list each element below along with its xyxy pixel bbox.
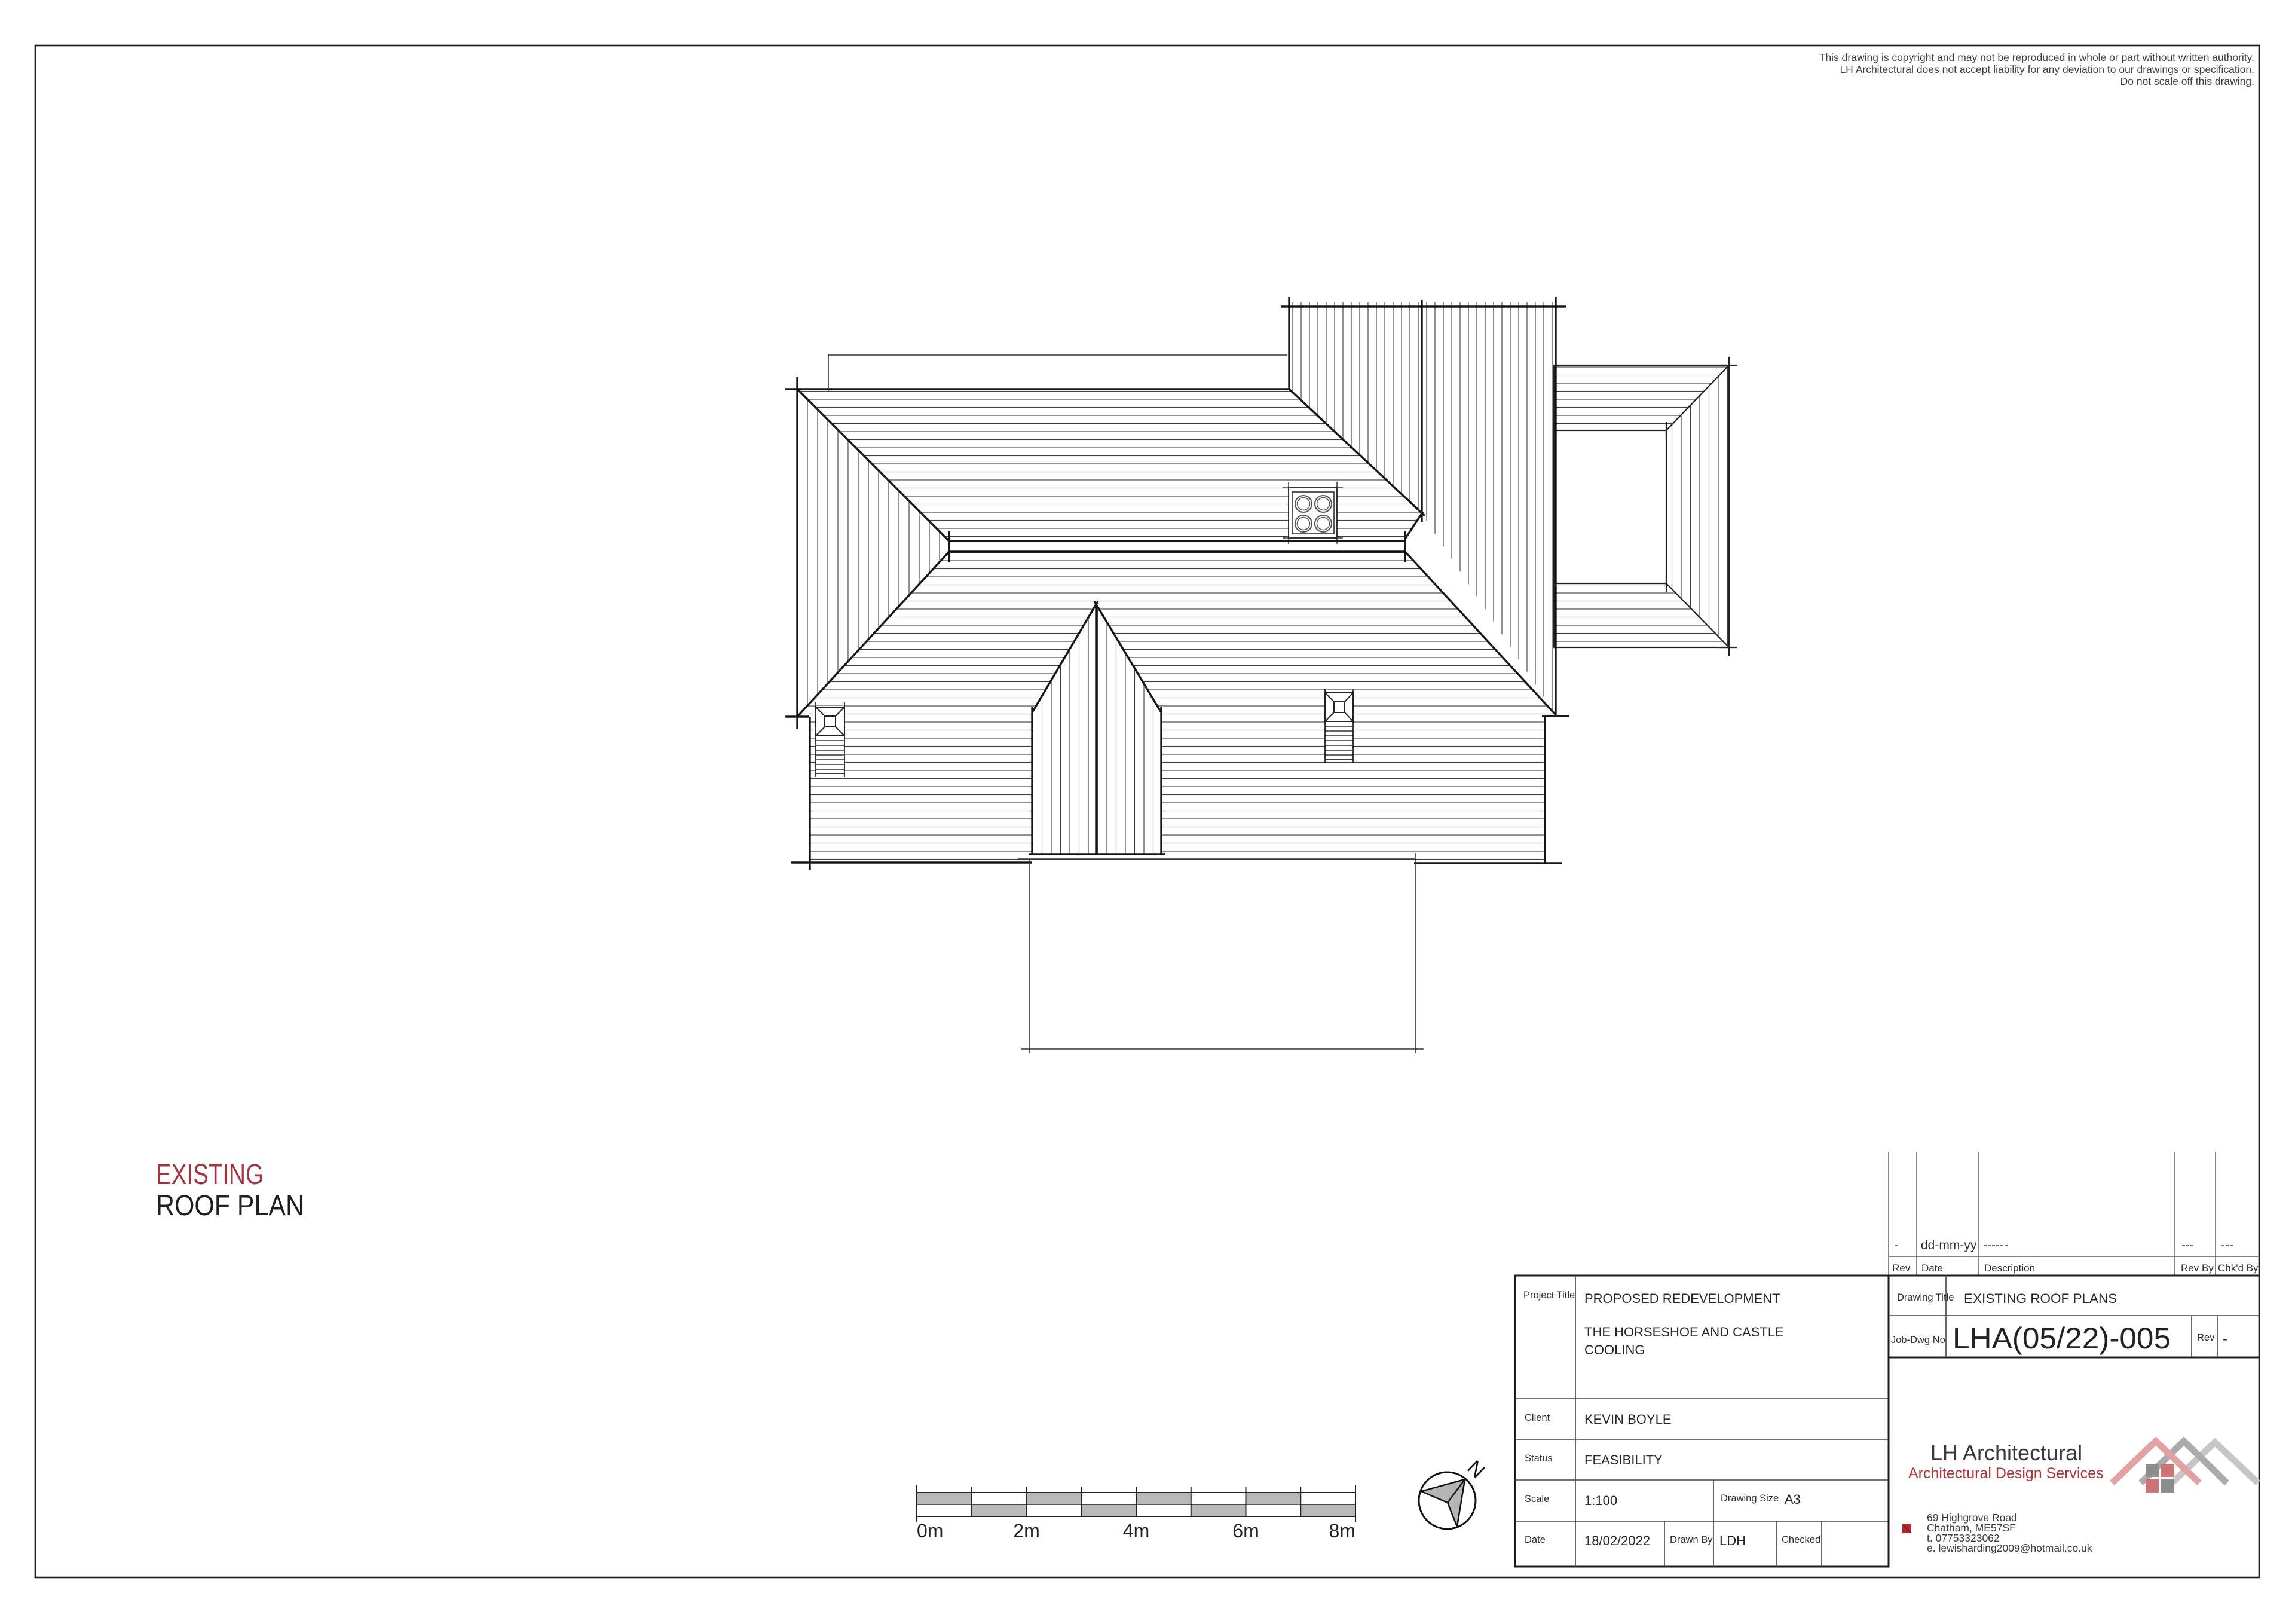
svg-text:LH Architectural does not acce: LH Architectural does not accept liabili… xyxy=(1840,63,2254,75)
svg-text:e. lewisharding2009@hotmail.co: e. lewisharding2009@hotmail.co.uk xyxy=(1927,1542,2092,1554)
svg-text:1:100: 1:100 xyxy=(1584,1493,1617,1508)
svg-text:N: N xyxy=(1462,1456,1489,1482)
svg-text:EXISTING ROOF PLANS: EXISTING ROOF PLANS xyxy=(1964,1291,2117,1306)
svg-text:Drawing Size: Drawing Size xyxy=(1721,1493,1779,1504)
svg-text:---: --- xyxy=(2221,1238,2233,1252)
svg-text:Do not scale off this drawing.: Do not scale off this drawing. xyxy=(2120,75,2254,87)
svg-text:2m: 2m xyxy=(1013,1520,1039,1542)
svg-text:KEVIN BOYLE: KEVIN BOYLE xyxy=(1584,1412,1672,1427)
svg-text:18/02/2022: 18/02/2022 xyxy=(1584,1533,1650,1548)
svg-text:LHA(05/22)-005: LHA(05/22)-005 xyxy=(1953,1322,2171,1355)
svg-text:Job-Dwg No: Job-Dwg No xyxy=(1891,1335,1945,1345)
svg-text:This drawing is copyright and: This drawing is copyright and may not be… xyxy=(1819,51,2254,63)
svg-text:Drawing Title: Drawing Title xyxy=(1897,1292,1954,1303)
svg-text:Rev: Rev xyxy=(2197,1332,2215,1343)
svg-text:THE HORSESHOE AND CASTLE: THE HORSESHOE AND CASTLE xyxy=(1584,1325,1784,1339)
svg-text:A3: A3 xyxy=(1785,1492,1801,1507)
svg-text:PROPOSED REDEVELOPMENT: PROPOSED REDEVELOPMENT xyxy=(1584,1291,1780,1306)
svg-text:dd-mm-yy: dd-mm-yy xyxy=(1921,1238,1977,1252)
svg-text:-: - xyxy=(1895,1238,1899,1252)
svg-text:-: - xyxy=(2223,1331,2227,1347)
svg-text:Rev: Rev xyxy=(1892,1262,1911,1274)
svg-text:Date: Date xyxy=(1525,1534,1546,1545)
svg-text:------: ------ xyxy=(1983,1238,2008,1252)
svg-text:ROOF PLAN: ROOF PLAN xyxy=(156,1190,304,1222)
svg-text:Project Title: Project Title xyxy=(1523,1290,1575,1301)
svg-text:Client: Client xyxy=(1525,1412,1550,1423)
svg-text:COOLING: COOLING xyxy=(1584,1342,1645,1357)
svg-text:Description: Description xyxy=(1984,1262,2035,1274)
svg-text:Date: Date xyxy=(1921,1262,1943,1274)
svg-text:Rev By: Rev By xyxy=(2181,1262,2214,1274)
svg-text:Checked: Checked xyxy=(1782,1534,1820,1545)
svg-text:Scale: Scale xyxy=(1525,1494,1549,1504)
svg-text:8m: 8m xyxy=(1329,1520,1355,1542)
svg-text:Chk'd By: Chk'd By xyxy=(2218,1262,2259,1274)
svg-text:LH Architectural: LH Architectural xyxy=(1930,1441,2082,1465)
svg-text:4m: 4m xyxy=(1123,1520,1149,1542)
svg-text:---: --- xyxy=(2181,1238,2194,1252)
svg-text:Architectural Design Services: Architectural Design Services xyxy=(1908,1465,2104,1482)
svg-text:Drawn By: Drawn By xyxy=(1670,1534,1713,1545)
svg-text:EXISTING: EXISTING xyxy=(156,1159,264,1191)
svg-text:LDH: LDH xyxy=(1719,1533,1746,1548)
svg-text:FEASIBILITY: FEASIBILITY xyxy=(1584,1452,1663,1467)
svg-text:6m: 6m xyxy=(1232,1520,1259,1542)
svg-text:0m: 0m xyxy=(917,1520,943,1542)
svg-text:Status: Status xyxy=(1525,1453,1553,1464)
